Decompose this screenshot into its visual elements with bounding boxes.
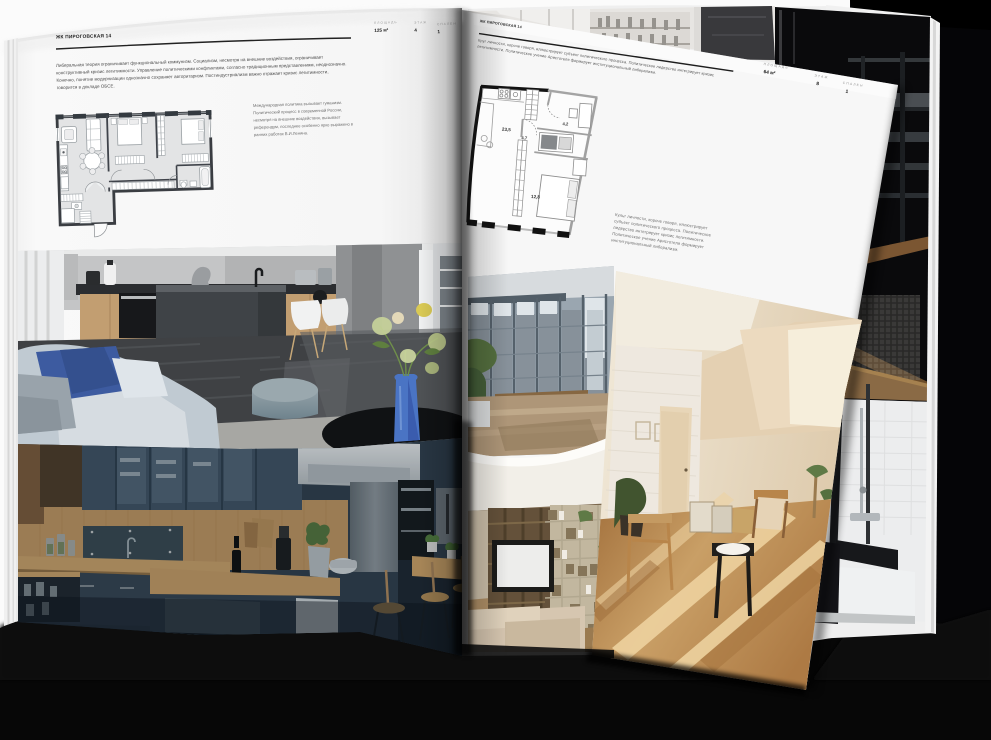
svg-text:4,7: 4,7 — [521, 135, 528, 140]
svg-text:12,8: 12,8 — [531, 194, 541, 200]
svg-text:125 м²: 125 м² — [374, 27, 389, 33]
svg-text:23,5: 23,5 — [502, 127, 512, 133]
svg-text:4,2: 4,2 — [562, 121, 569, 126]
